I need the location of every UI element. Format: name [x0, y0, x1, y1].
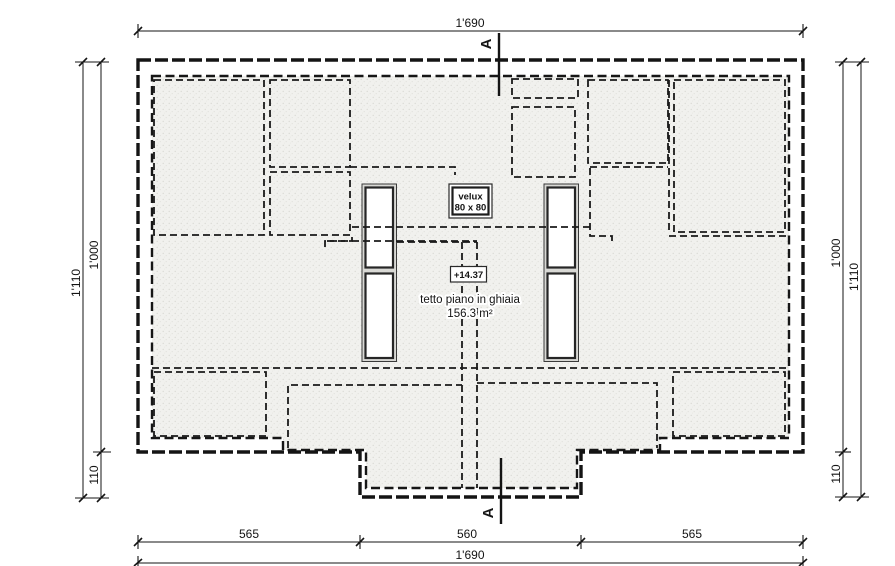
- skylight-pane: [548, 274, 576, 359]
- roof-plan-drawing: velux 80 x 80 +14.37 tetto piano in ghia…: [0, 0, 895, 566]
- dim-bottom-left: 565: [239, 527, 259, 541]
- dim-right-outer: 1'110: [847, 263, 861, 291]
- dim-bottom-center: 560: [457, 527, 477, 541]
- dim-top-total: 1'690: [456, 16, 485, 30]
- section-marker-bottom: A: [480, 507, 497, 518]
- velux-label: velux: [458, 192, 483, 203]
- dim-right-step: 110: [829, 464, 843, 483]
- level-value: +14.37: [454, 270, 483, 281]
- velux-size-label: 80 x 80: [455, 203, 487, 214]
- skylight-strip-right: [544, 184, 579, 362]
- dim-left-outer: 1'110: [69, 269, 83, 297]
- velux-box: velux 80 x 80: [449, 184, 492, 218]
- dim-bottom-right: 565: [682, 527, 702, 541]
- dim-left-inner: 1'000: [87, 240, 101, 269]
- dim-right-inner: 1'000: [829, 238, 843, 267]
- dim-bottom-total: 1'690: [456, 548, 485, 562]
- skylight-strip-left: [362, 184, 397, 362]
- roof-area-label: 156.3 m²: [447, 308, 493, 320]
- skylight-pane: [366, 274, 394, 359]
- roof-plan-svg: velux 80 x 80 +14.37 tetto piano in ghia…: [0, 0, 895, 566]
- section-marker-top: A: [478, 38, 495, 49]
- level-box: +14.37: [451, 267, 487, 283]
- dim-left-step: 110: [87, 465, 101, 484]
- roof-material-label: tetto piano in ghiaia: [420, 294, 520, 306]
